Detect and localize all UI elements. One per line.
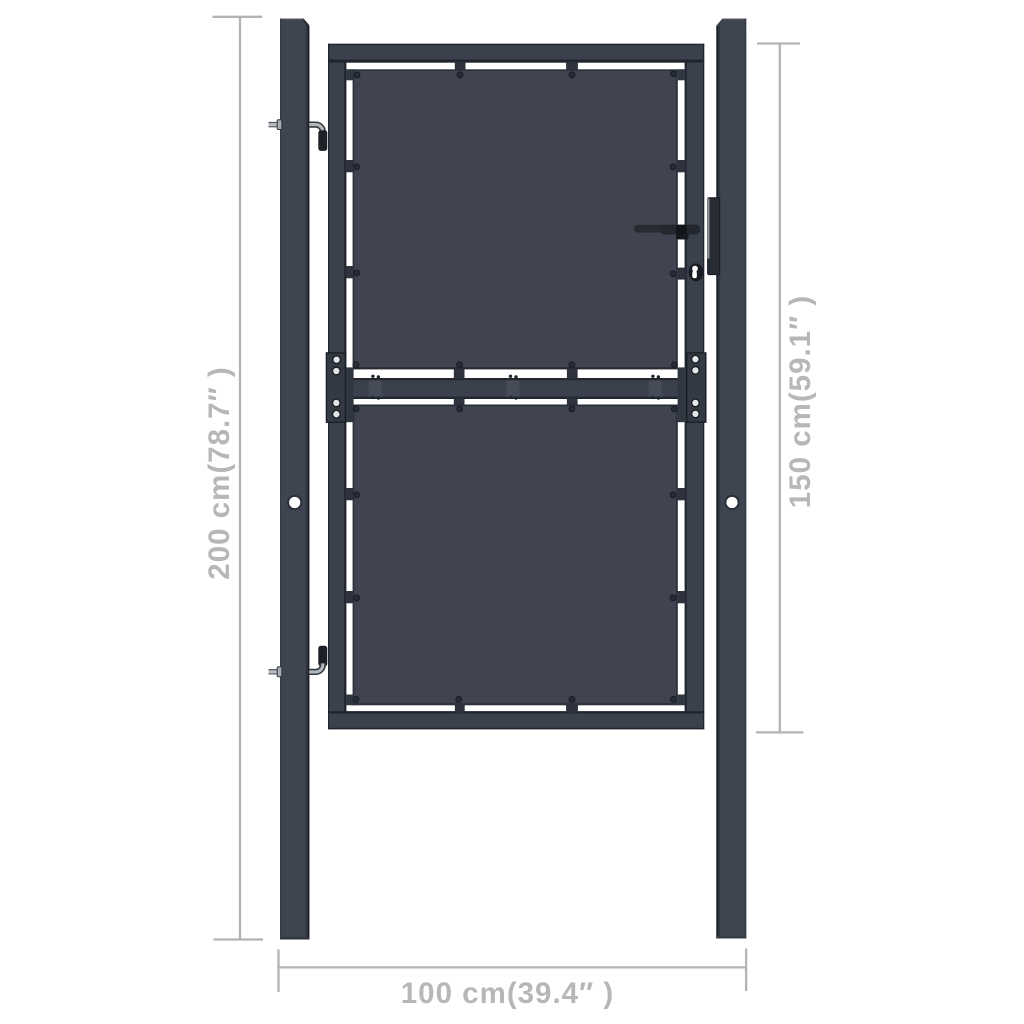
svg-text:200 cm(78.7″ ): 200 cm(78.7″ ) (203, 366, 236, 579)
svg-text:150 cm(59.1″ ): 150 cm(59.1″ ) (784, 295, 817, 508)
svg-text:100 cm(39.4″ ): 100 cm(39.4″ ) (401, 977, 614, 1010)
